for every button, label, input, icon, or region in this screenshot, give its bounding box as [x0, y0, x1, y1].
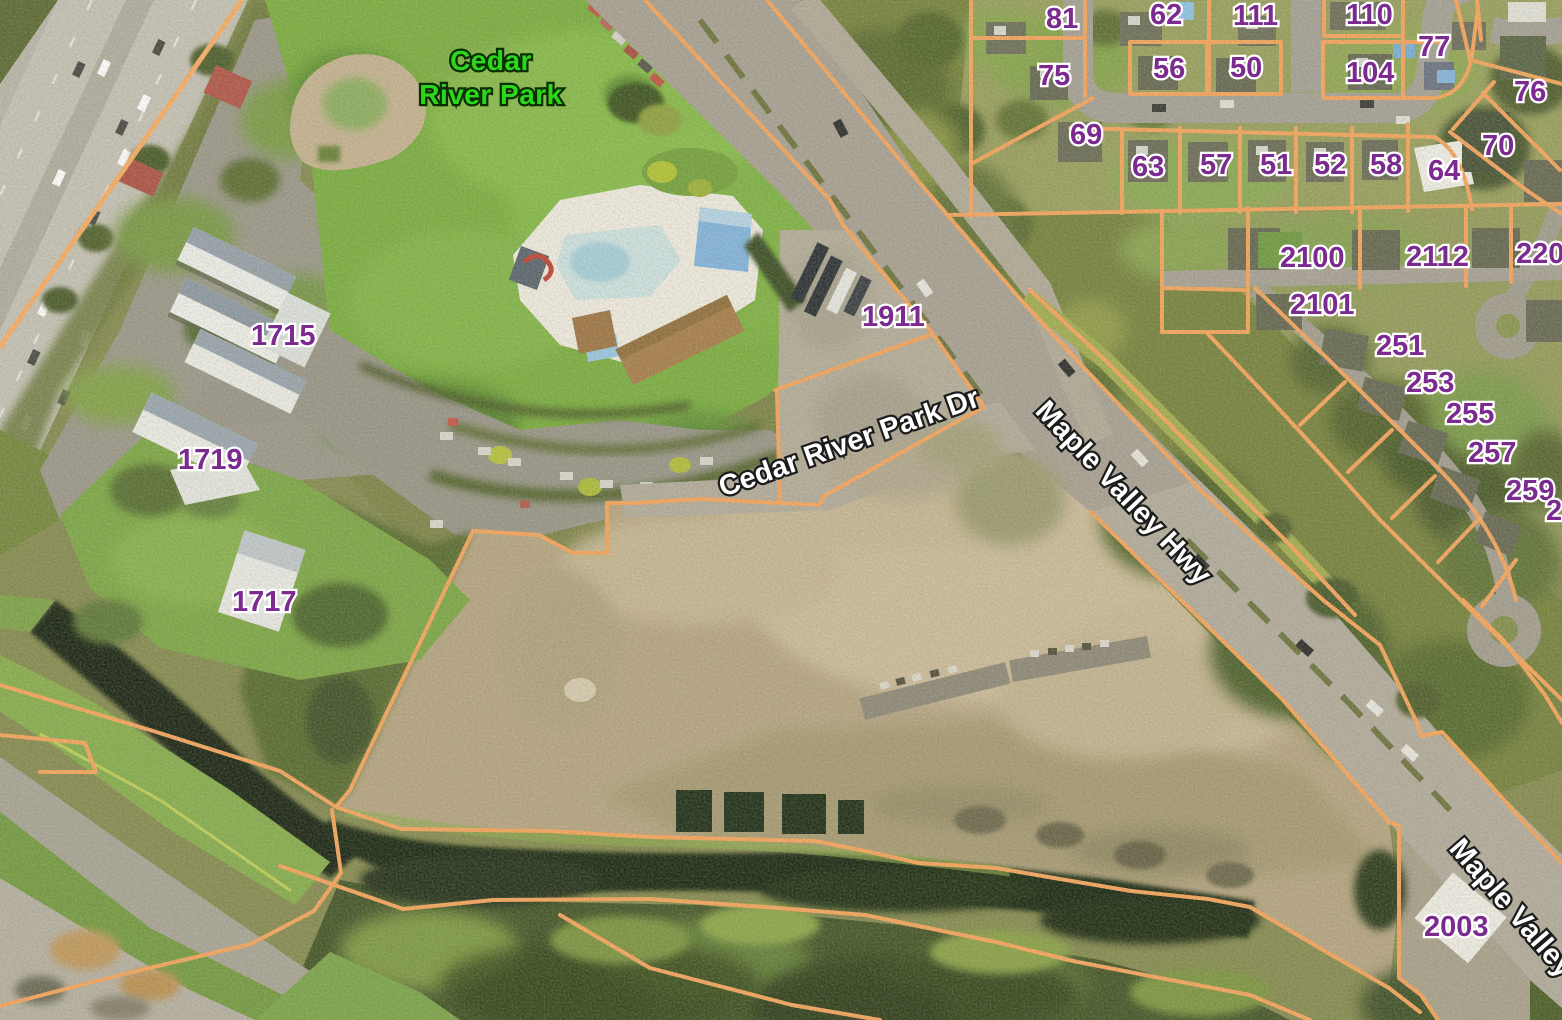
svg-text:257: 257	[1468, 437, 1516, 469]
svg-text:1719: 1719	[178, 444, 243, 476]
svg-text:Cedar: Cedar	[450, 45, 532, 76]
svg-text:2101: 2101	[1290, 289, 1355, 321]
svg-text:50: 50	[1230, 52, 1262, 84]
svg-text:104: 104	[1346, 57, 1394, 89]
svg-text:81: 81	[1046, 3, 1078, 35]
svg-text:69: 69	[1070, 119, 1102, 151]
svg-text:251: 251	[1376, 330, 1424, 362]
svg-text:1715: 1715	[251, 320, 316, 352]
svg-text:62: 62	[1150, 0, 1182, 31]
svg-text:75: 75	[1038, 60, 1070, 92]
svg-text:52: 52	[1314, 149, 1346, 181]
svg-text:2112: 2112	[1406, 241, 1469, 273]
svg-text:64: 64	[1428, 155, 1460, 187]
svg-text:2100: 2100	[1280, 242, 1345, 274]
svg-text:River Park: River Park	[419, 79, 563, 110]
svg-text:51: 51	[1260, 149, 1292, 181]
svg-text:110: 110	[1346, 0, 1393, 31]
svg-text:77: 77	[1418, 31, 1450, 63]
svg-text:1911: 1911	[862, 301, 925, 333]
svg-text:255: 255	[1446, 398, 1494, 430]
svg-text:220: 220	[1516, 238, 1562, 270]
svg-text:57: 57	[1200, 149, 1232, 181]
svg-text:2: 2	[1546, 495, 1562, 527]
svg-text:58: 58	[1370, 149, 1402, 181]
svg-text:70: 70	[1482, 130, 1514, 162]
svg-text:111: 111	[1233, 0, 1278, 32]
svg-text:2003: 2003	[1424, 911, 1489, 943]
svg-text:253: 253	[1406, 367, 1454, 399]
svg-text:63: 63	[1132, 151, 1164, 183]
svg-text:56: 56	[1153, 53, 1185, 85]
svg-text:76: 76	[1514, 76, 1546, 108]
svg-text:1717: 1717	[232, 586, 297, 618]
